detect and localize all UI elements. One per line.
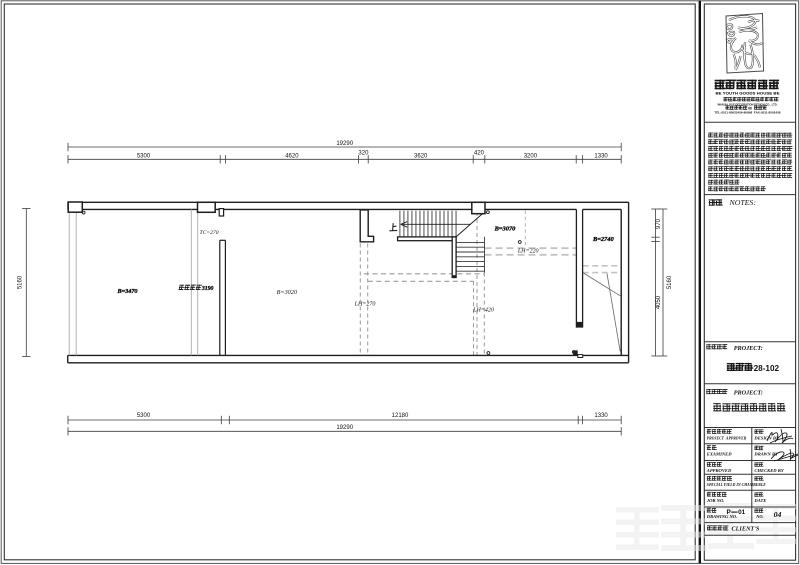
svg-text:BE YOUTH GOODS HOUSE BE: BE YOUTH GOODS HOUSE BE: [716, 91, 781, 95]
svg-text:NOTES:: NOTES:: [729, 198, 756, 207]
svg-text:3200: 3200: [524, 153, 538, 159]
svg-text:B=3070: B=3070: [494, 226, 516, 233]
svg-text:PROJECT:: PROJECT:: [734, 390, 763, 397]
svg-text:5160: 5160: [18, 275, 24, 289]
svg-text:19290: 19290: [336, 425, 353, 431]
svg-text:04: 04: [774, 510, 782, 519]
svg-text:970: 970: [656, 218, 662, 229]
svg-text:B=3020: B=3020: [277, 289, 298, 296]
svg-text:EXAMINED: EXAMINED: [706, 452, 732, 457]
svg-text:1330: 1330: [594, 153, 608, 159]
svg-text:JOB NO.: JOB NO.: [706, 498, 725, 503]
svg-text:5300: 5300: [137, 413, 151, 419]
svg-text:CLIENT'S: CLIENT'S: [732, 525, 760, 532]
svg-text:LH=420: LH=420: [472, 307, 494, 314]
svg-text:DRAWN BY: DRAWN BY: [753, 452, 779, 457]
svg-text:SPECIAL FIELD IN CHAMBERLE: SPECIAL FIELD IN CHAMBERLE: [707, 482, 766, 487]
svg-text:CHECKED BY: CHECKED BY: [754, 468, 784, 473]
svg-text:B=2740: B=2740: [592, 236, 614, 243]
svg-text:PROJECT:: PROJECT:: [734, 345, 763, 352]
svg-text:4050: 4050: [656, 295, 662, 309]
svg-text:3620: 3620: [414, 153, 428, 159]
svg-text:LH=220: LH=220: [517, 249, 539, 255]
svg-text:PROJECT APPROVER: PROJECT APPROVER: [707, 435, 747, 440]
svg-text:28-102: 28-102: [754, 364, 780, 373]
svg-text:5300: 5300: [137, 153, 151, 159]
svg-text:TEL:0511-85023456-80898 FAX:0: TEL:0511-85023456-80898 FAX:0511-8502458: [715, 111, 781, 115]
svg-text:DATE: DATE: [753, 498, 766, 503]
svg-text:420: 420: [474, 151, 485, 157]
svg-text:B=3470: B=3470: [116, 288, 137, 295]
svg-text:01: 01: [738, 509, 746, 516]
svg-text:1330: 1330: [594, 413, 608, 419]
svg-text:3190: 3190: [201, 286, 214, 292]
svg-text:DRAWING NO.: DRAWING NO.: [706, 514, 737, 519]
svg-text:320: 320: [358, 151, 369, 157]
svg-text:19290: 19290: [336, 141, 353, 147]
svg-text:TC=270: TC=270: [199, 230, 218, 236]
svg-text:LH=270: LH=270: [354, 302, 376, 308]
svg-text:APPROVED: APPROVED: [706, 468, 732, 473]
svg-text:4620: 4620: [285, 153, 299, 159]
svg-text:P: P: [727, 509, 732, 516]
svg-text:DESIGN BY: DESIGN BY: [753, 435, 780, 440]
svg-text:5160: 5160: [667, 275, 673, 289]
svg-text:NO.: NO.: [755, 514, 763, 519]
svg-text:12180: 12180: [392, 413, 409, 419]
